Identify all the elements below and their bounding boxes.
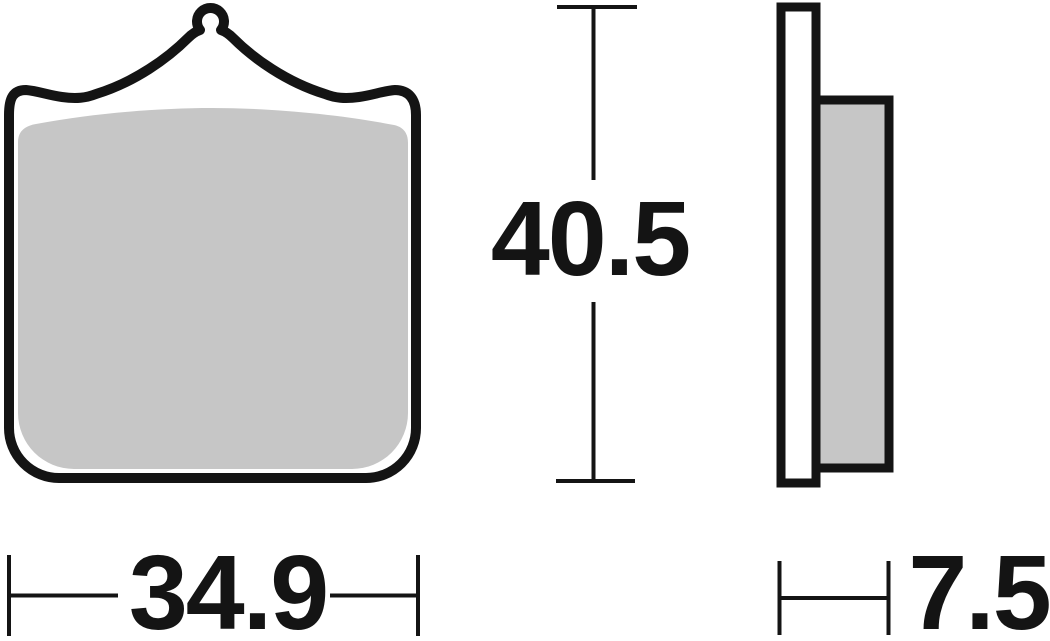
height-dimension-label: 40.5 bbox=[470, 186, 710, 292]
width-dimension-label: 34.9 bbox=[108, 540, 348, 641]
drawing-canvas: 34.9 40.5 7.5 bbox=[0, 0, 1050, 641]
front-view bbox=[9, 8, 416, 478]
side-view bbox=[781, 7, 889, 483]
front-friction-material bbox=[18, 108, 408, 469]
thickness-dimension-label: 7.5 bbox=[859, 540, 1050, 641]
side-friction-material bbox=[816, 100, 889, 468]
side-backplate bbox=[781, 7, 816, 483]
